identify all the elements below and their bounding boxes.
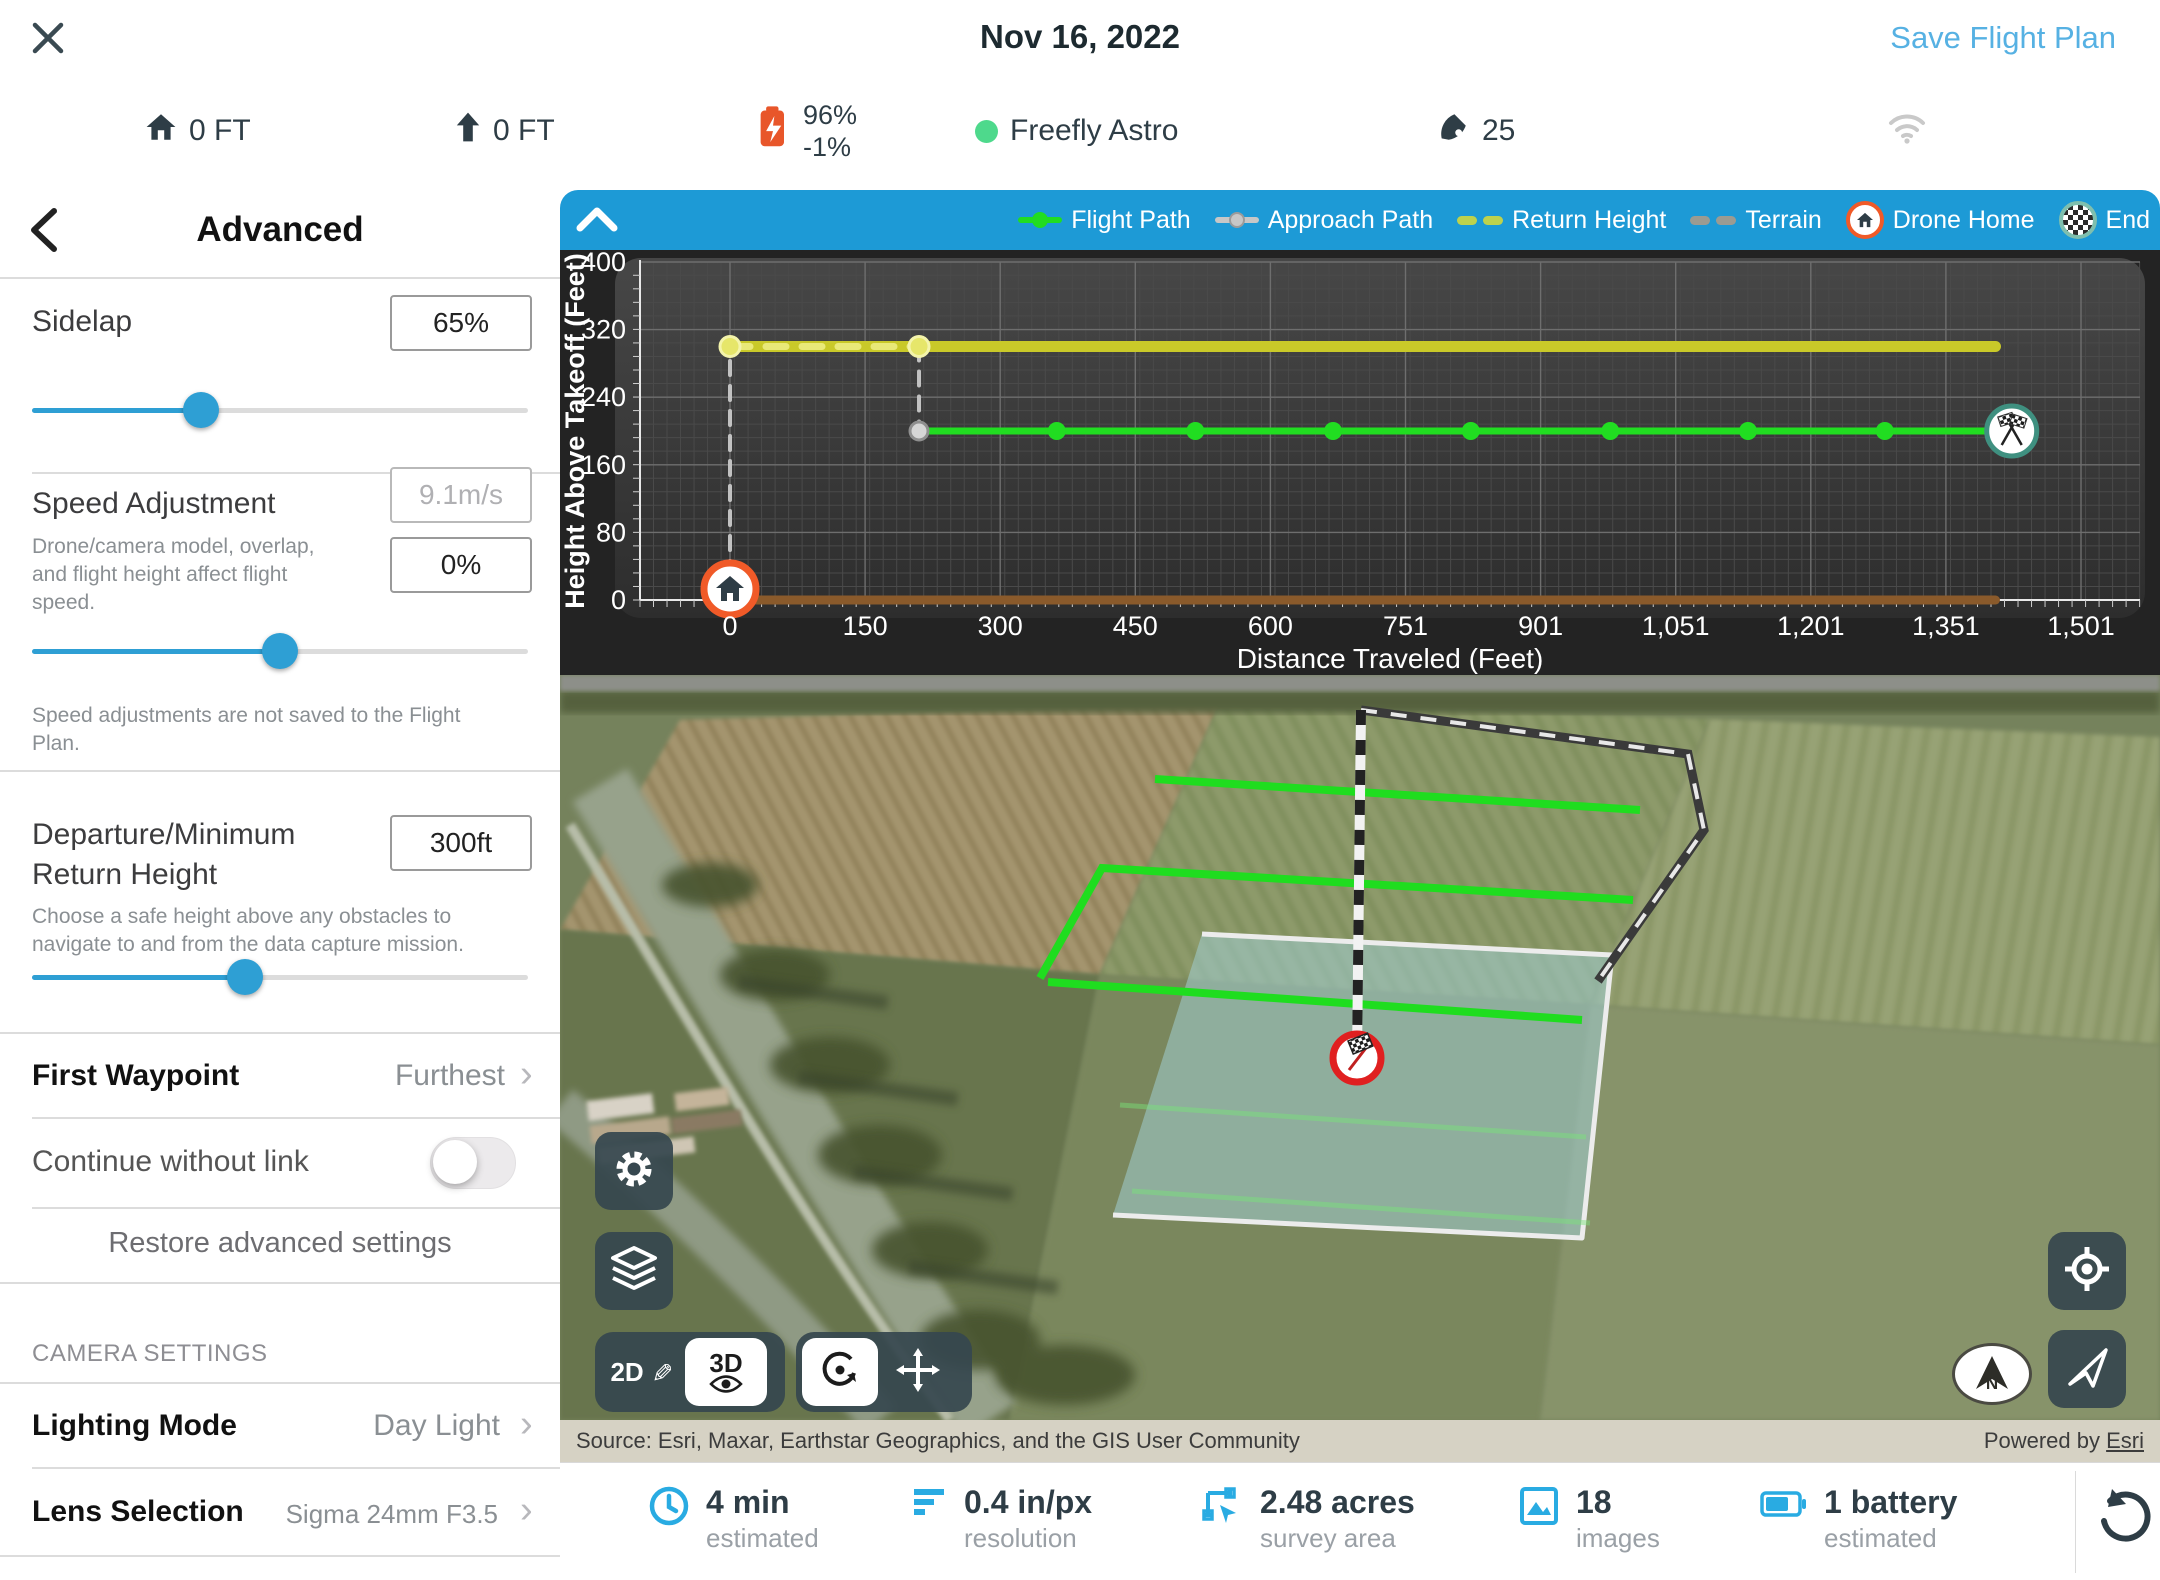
flight-plan-app: Nov 16, 2022 Save Flight Plan 0 FT 0 FT <box>0 0 2160 1580</box>
battery-count-icon <box>1760 1485 1808 1530</box>
measure-ruler-line <box>1357 710 1361 1056</box>
satellite-count: 25 <box>1436 75 1515 187</box>
lighting-mode-chevron-icon[interactable]: › <box>520 1409 533 1439</box>
relative-altitude: 0 FT <box>455 75 555 187</box>
locate-me-button[interactable] <box>2048 1232 2126 1310</box>
speed-caption: Drone/camera model, overlap, and flight … <box>32 533 352 617</box>
mission-stats-bar: 4 minestimated 0.4 in/pxresolution 2.48 … <box>560 1462 2160 1580</box>
lens-selection-value: Sigma 24mm F3.5 <box>248 1499 498 1530</box>
svg-text:1,051: 1,051 <box>1642 611 1710 641</box>
gear-icon <box>611 1146 657 1197</box>
camera-settings-section-label: CAMERA SETTINGS <box>32 1340 268 1368</box>
altitude-profile-panel: Flight PathApproach PathReturn HeightTer… <box>560 187 2160 675</box>
chart-legend: Flight PathApproach PathReturn HeightTer… <box>1018 190 2150 250</box>
speed-slider[interactable] <box>32 633 528 669</box>
navigation-arrow-icon <box>2064 1344 2110 1395</box>
battery-estimate-stat: 1 batteryestimated <box>1760 1483 1957 1555</box>
top-header: Nov 16, 2022 Save Flight Plan <box>0 0 2160 75</box>
speed-adjustment-label: Speed Adjustment <box>32 487 276 521</box>
legend-item-return: Return Height <box>1457 206 1666 235</box>
pan-mode-button[interactable] <box>882 1338 954 1406</box>
legend-item-end: End <box>2059 201 2150 239</box>
svg-text:600: 600 <box>1248 611 1293 641</box>
drone-name: Freefly Astro <box>1010 114 1178 148</box>
eye-icon <box>709 1375 743 1398</box>
svg-text:150: 150 <box>843 611 888 641</box>
home-icon <box>145 112 177 150</box>
terrain-swatch-icon <box>1690 216 1736 225</box>
continue-without-link-toggle[interactable] <box>430 1137 516 1189</box>
image-icon <box>1518 1485 1560 1532</box>
panel-title: Advanced <box>0 210 560 250</box>
speed-value-field[interactable]: 9.1m/s <box>390 467 532 523</box>
save-flight-plan-button[interactable]: Save Flight Plan <box>1890 20 2116 56</box>
first-waypoint-label: First Waypoint <box>32 1059 239 1093</box>
map-imagery <box>560 675 2160 1420</box>
page-title: Nov 16, 2022 <box>0 18 2160 56</box>
svg-text:0: 0 <box>722 611 737 641</box>
map-layers-button[interactable] <box>595 1232 673 1310</box>
chart-canvas: 01503004506007519011,0511,2011,3511,5010… <box>560 250 2160 675</box>
orbit-mode-button[interactable] <box>802 1338 878 1406</box>
speed-slider-thumb[interactable] <box>262 633 298 669</box>
home-altitude: 0 FT <box>145 75 251 187</box>
battery-drain: -1% <box>803 131 857 163</box>
end-swatch-icon <box>2059 201 2097 239</box>
svg-text:300: 300 <box>978 611 1023 641</box>
lighting-mode-value: Day Light <box>320 1409 500 1443</box>
telemetry-status-bar: 0 FT 0 FT 96% -1% Freefly Astro <box>0 75 2160 189</box>
drone-connection: Freefly Astro <box>975 75 1178 187</box>
svg-text:901: 901 <box>1518 611 1563 641</box>
lens-selection-label: Lens Selection <box>32 1495 244 1529</box>
approach-path-swatch-icon <box>1215 217 1259 223</box>
toggle-knob[interactable] <box>433 1140 477 1184</box>
clock-icon <box>648 1485 690 1532</box>
departure-caption: Choose a safe height above any obstacles… <box>32 903 532 959</box>
lighting-mode-label: Lighting Mode <box>32 1409 237 1443</box>
flight-path-swatch-icon <box>1018 217 1062 223</box>
svg-text:0: 0 <box>611 585 626 615</box>
first-waypoint-value: Furthest <box>345 1059 505 1093</box>
powered-by: Powered by Esri <box>1984 1428 2144 1454</box>
advanced-settings-panel: Advanced Sidelap 65% Speed Adjustment 9.… <box>0 187 561 1580</box>
lens-selection-chevron-icon[interactable]: › <box>520 1495 533 1525</box>
collapse-chart-icon[interactable] <box>574 202 620 238</box>
satellite-icon <box>1436 110 1470 152</box>
compass-north-indicator[interactable]: N <box>1952 1343 2032 1405</box>
reset-refresh-icon[interactable] <box>2092 1487 2154 1549</box>
departure-height-label: Departure/Minimum Return Height <box>32 815 362 895</box>
navigation-arrow-button[interactable] <box>2048 1330 2126 1408</box>
stats-divider <box>2075 1471 2076 1573</box>
estimated-time-stat: 4 minestimated <box>648 1483 819 1555</box>
svg-text:1,351: 1,351 <box>1912 611 1980 641</box>
speed-adjust-field[interactable]: 0% <box>390 537 532 593</box>
wifi-icon <box>1885 109 1929 153</box>
legend-item-home: Drone Home <box>1846 201 2035 239</box>
svg-text:1,201: 1,201 <box>1777 611 1845 641</box>
orbit-icon <box>818 1348 862 1397</box>
crosshair-locate-icon <box>2063 1245 2111 1298</box>
wifi-status <box>1885 75 1929 187</box>
svg-text:450: 450 <box>1113 611 1158 641</box>
map-2d-button[interactable]: 2D ✎ <box>601 1338 681 1406</box>
legend-item-approach: Approach Path <box>1215 206 1433 235</box>
first-waypoint-chevron-icon[interactable]: › <box>520 1059 533 1089</box>
layers-icon <box>609 1246 659 1297</box>
sidelap-slider-thumb[interactable] <box>183 392 219 428</box>
svg-text:N: N <box>1986 1374 1998 1393</box>
battery-icon <box>755 105 791 157</box>
legend-item-terrain: Terrain <box>1690 206 1821 235</box>
svg-text:1,501: 1,501 <box>2047 611 2115 641</box>
sidelap-slider[interactable] <box>32 392 528 428</box>
sidelap-label: Sidelap <box>32 305 132 339</box>
map-gesture-toggle <box>796 1332 972 1412</box>
mission-map[interactable]: 2D ✎ 3D <box>560 675 2160 1420</box>
svg-text:80: 80 <box>596 517 626 547</box>
return-height-swatch-icon <box>1457 216 1503 225</box>
battery-percent: 96% <box>803 99 857 131</box>
survey-area-icon <box>1200 1485 1244 1534</box>
end-waypoint-marker <box>1333 1033 1381 1082</box>
images-stat: 18images <box>1518 1483 1660 1555</box>
attribution-source: Source: Esri, Maxar, Earthstar Geographi… <box>576 1428 1300 1454</box>
svg-text:Height Above Takeoff (Feet): Height Above Takeoff (Feet) <box>560 253 590 609</box>
legend-item-flight: Flight Path <box>1018 206 1191 235</box>
svg-text:751: 751 <box>1383 611 1428 641</box>
restore-advanced-settings-button[interactable]: Restore advanced settings <box>0 1227 560 1260</box>
svg-text:Distance Traveled (Feet): Distance Traveled (Feet) <box>1237 643 1544 674</box>
altitude-profile-chart: 01503004506007519011,0511,2011,3511,5010… <box>560 250 2160 675</box>
resolution-stat: 0.4 in/pxresolution <box>912 1483 1092 1555</box>
chart-legend-bar: Flight PathApproach PathReturn HeightTer… <box>560 190 2160 250</box>
departure-height-field[interactable]: 300ft <box>390 815 532 871</box>
drone-home-swatch-icon <box>1846 201 1884 239</box>
map-3d-button[interactable]: 3D <box>685 1338 767 1406</box>
sidelap-value-field[interactable]: 65% <box>390 295 532 351</box>
pencil-icon: ✎ <box>645 1361 676 1383</box>
battery-status: 96% -1% <box>755 75 857 187</box>
speed-note: Speed adjustments are not saved to the F… <box>32 702 462 758</box>
map-dimension-toggle: 2D ✎ 3D <box>595 1332 785 1412</box>
map-settings-button[interactable] <box>595 1132 673 1210</box>
connected-dot-icon <box>975 120 998 143</box>
map-attribution-bar: Source: Esri, Maxar, Earthstar Geographi… <box>560 1420 2160 1462</box>
departure-slider-thumb[interactable] <box>227 959 263 995</box>
resolution-icon <box>912 1485 948 1530</box>
continue-without-link-label: Continue without link <box>32 1145 309 1179</box>
up-arrow-icon <box>455 111 481 151</box>
departure-slider[interactable] <box>32 959 528 995</box>
survey-area-stat: 2.48 acressurvey area <box>1200 1483 1415 1555</box>
pan-move-icon <box>896 1348 940 1397</box>
esri-link[interactable]: Esri <box>2106 1428 2144 1453</box>
